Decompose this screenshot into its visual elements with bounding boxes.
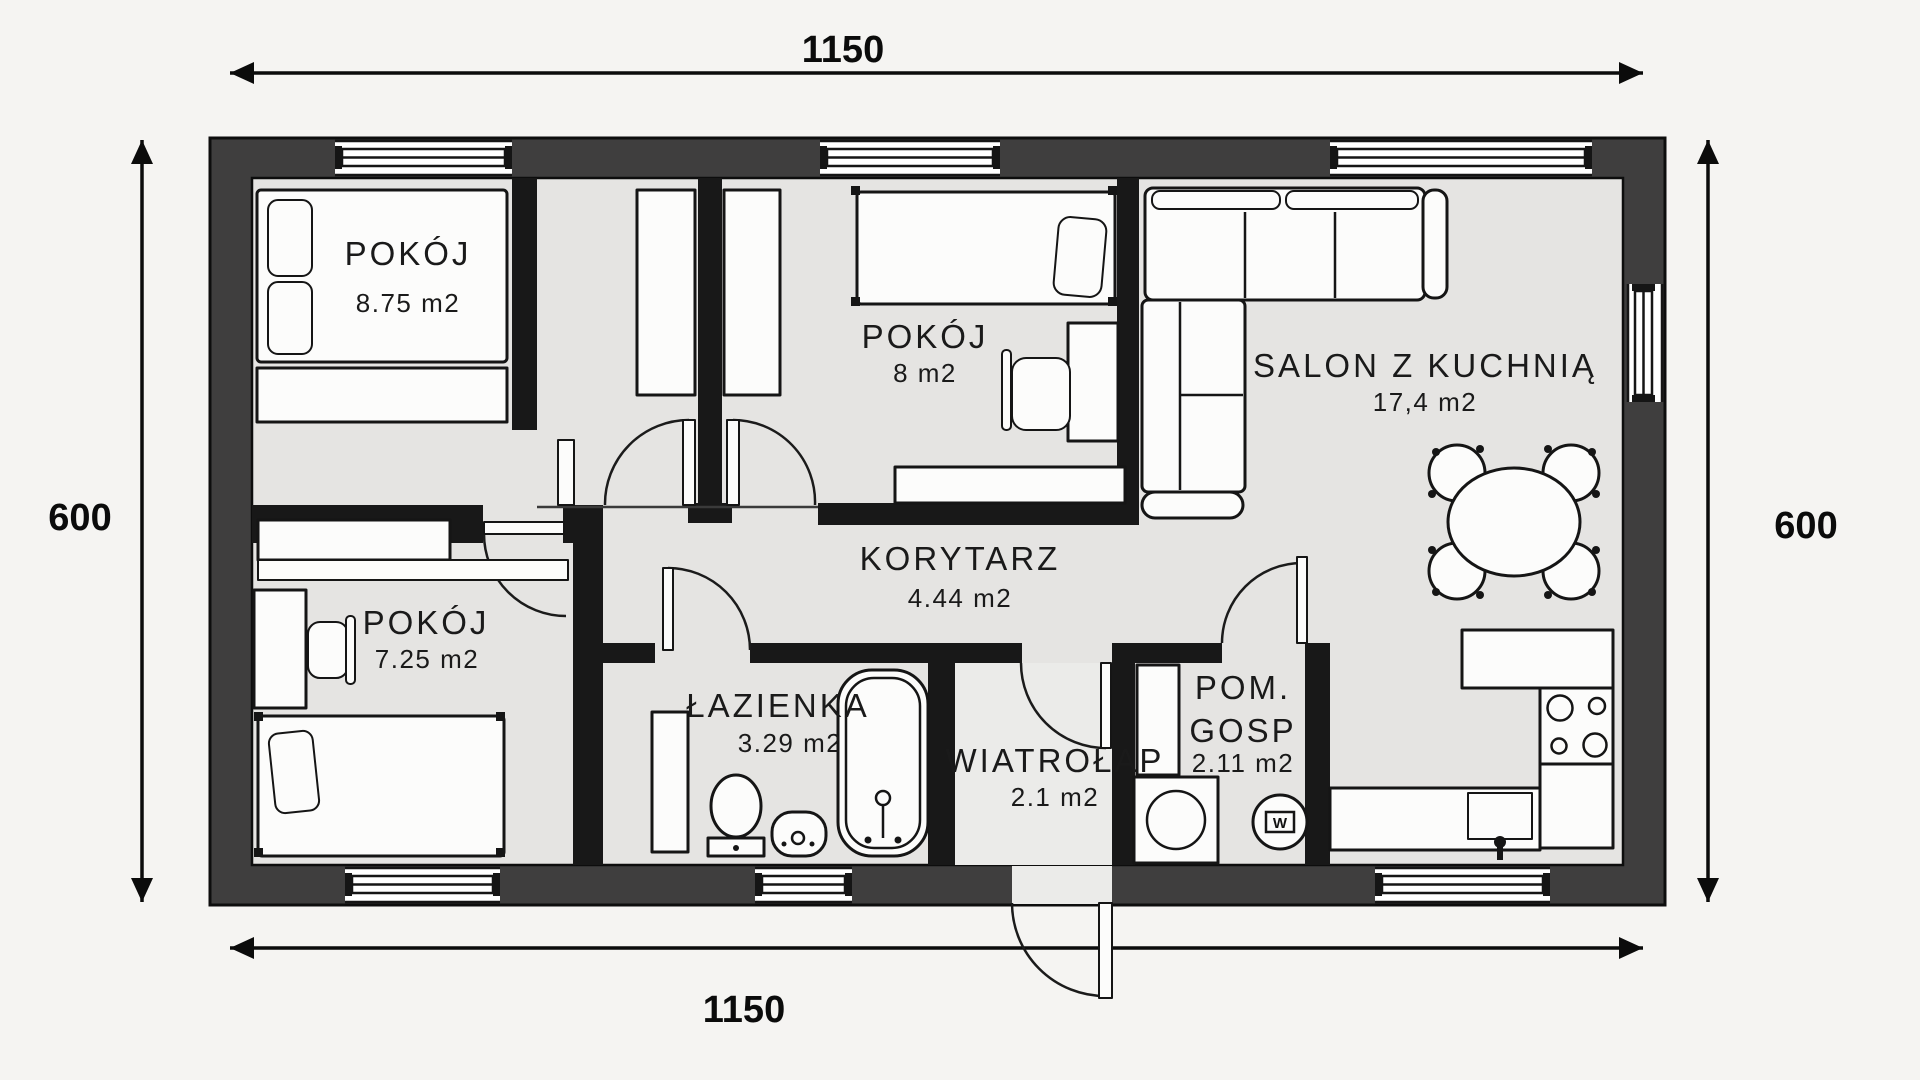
room-name-utility-1: POM. xyxy=(1195,669,1291,706)
building: W POKÓJ 8.75 m2 POKÓJ 8 m2 SALON Z KUCHN… xyxy=(210,138,1665,998)
desk xyxy=(1068,323,1118,441)
room-name-bedroom1: POKÓJ xyxy=(345,235,472,272)
door-leaf-bedroom1 xyxy=(683,420,695,505)
door-leaf-vestibule xyxy=(1101,663,1111,748)
window xyxy=(1627,284,1663,402)
wall-bedroom2-hall xyxy=(818,503,1128,525)
room-area-utility: 2.11 m2 xyxy=(1192,748,1295,778)
shelf xyxy=(258,560,568,580)
window xyxy=(335,140,512,176)
room-area-bathroom: 3.29 m2 xyxy=(738,728,842,758)
floor-plan-drawing: 1150 1150 600 600 xyxy=(0,0,1920,1080)
wardrobe xyxy=(637,190,695,395)
pillow xyxy=(268,200,312,276)
dimension-top-value: 1150 xyxy=(802,29,884,71)
dimension-top: 1150 xyxy=(230,29,1643,84)
wall-utility-north xyxy=(1135,643,1222,663)
door-leaf-bedroom2 xyxy=(727,420,739,505)
dimension-right-value: 600 xyxy=(1774,505,1837,547)
arrow-left-icon xyxy=(230,937,254,959)
wall-bathroom-north xyxy=(750,643,928,663)
water-heater-label: W xyxy=(1273,815,1288,832)
chair xyxy=(308,622,348,678)
room-area-hall: 4.44 m2 xyxy=(908,583,1012,613)
chair-back xyxy=(1002,350,1011,430)
window xyxy=(345,867,500,903)
door-leaf-entrance xyxy=(1099,903,1112,998)
floor-plan-page: 1150 1150 600 600 xyxy=(0,0,1920,1080)
shelf xyxy=(895,467,1125,503)
room-area-bedroom1: 8.75 m2 xyxy=(356,288,460,318)
arrow-down-icon xyxy=(131,878,153,902)
wall-utility-living xyxy=(1305,643,1330,865)
faucet-icon xyxy=(1497,846,1503,860)
dining-set xyxy=(1428,445,1600,599)
room-area-bedroom2: 8 m2 xyxy=(893,358,957,388)
entrance-opening xyxy=(1012,866,1112,904)
room-name-utility-2: GOSP xyxy=(1189,712,1296,749)
room-area-living: 17,4 m2 xyxy=(1373,387,1477,417)
sofa-cushion xyxy=(1286,191,1418,209)
wall-bathroom-north xyxy=(603,643,655,663)
desk xyxy=(254,590,306,708)
arrow-right-icon xyxy=(1619,937,1643,959)
arrow-left-icon xyxy=(230,62,254,84)
room-name-living: SALON Z KUCHNIĄ xyxy=(1253,347,1597,384)
arrow-up-icon xyxy=(131,140,153,164)
window xyxy=(755,867,852,903)
room-area-vestibule: 2.1 m2 xyxy=(1011,782,1100,812)
wall-bedroom3-hall xyxy=(573,505,603,865)
pillow xyxy=(268,282,312,354)
wall-vestibule-north xyxy=(955,643,1022,663)
door-leaf-utility xyxy=(1297,557,1307,643)
dining-table xyxy=(1448,468,1580,576)
arrow-right-icon xyxy=(1619,62,1643,84)
dresser xyxy=(257,368,507,422)
dimension-bottom: 1150 xyxy=(230,937,1643,1031)
chair-back xyxy=(346,616,355,684)
dimension-left-value: 600 xyxy=(48,497,111,539)
arrow-up-icon xyxy=(1697,140,1719,164)
sofa-armrest xyxy=(1423,190,1447,298)
bathroom-cabinet xyxy=(652,712,688,852)
chair xyxy=(1012,358,1070,430)
room-name-bedroom2: POKÓJ xyxy=(862,318,989,355)
dimension-left: 600 xyxy=(48,140,153,902)
door-leaf-bedroom3 xyxy=(484,522,564,534)
wall-bedroom1-closet xyxy=(512,178,537,430)
door-leaf-bathroom xyxy=(663,568,673,650)
window xyxy=(1375,867,1550,903)
dimension-right: 600 xyxy=(1697,140,1838,902)
toilet xyxy=(711,775,761,837)
window xyxy=(820,140,1000,176)
sofa-armrest xyxy=(1142,492,1243,518)
shelf xyxy=(258,520,450,560)
room-name-hall: KORYTARZ xyxy=(860,540,1061,577)
arrow-down-icon xyxy=(1697,878,1719,902)
room-area-bedroom3: 7.25 m2 xyxy=(375,644,479,674)
kitchen-counter xyxy=(1462,630,1613,688)
washbasin xyxy=(772,812,826,856)
room-name-bathroom: ŁAZIENKA xyxy=(686,687,870,724)
dimension-bottom-value: 1150 xyxy=(703,989,785,1031)
sofa-cushion xyxy=(1152,191,1280,209)
pillow xyxy=(1053,216,1108,298)
kitchen-sink xyxy=(1468,793,1532,839)
wall-closet-bedroom2 xyxy=(698,178,722,505)
room-name-vestibule: WIATROŁAP xyxy=(946,742,1165,779)
room-name-bedroom3: POKÓJ xyxy=(363,604,490,641)
pillow xyxy=(268,730,320,814)
wardrobe xyxy=(724,190,780,395)
shelf xyxy=(558,440,574,505)
window xyxy=(1330,140,1592,176)
kitchen-cabinet xyxy=(1540,764,1613,848)
